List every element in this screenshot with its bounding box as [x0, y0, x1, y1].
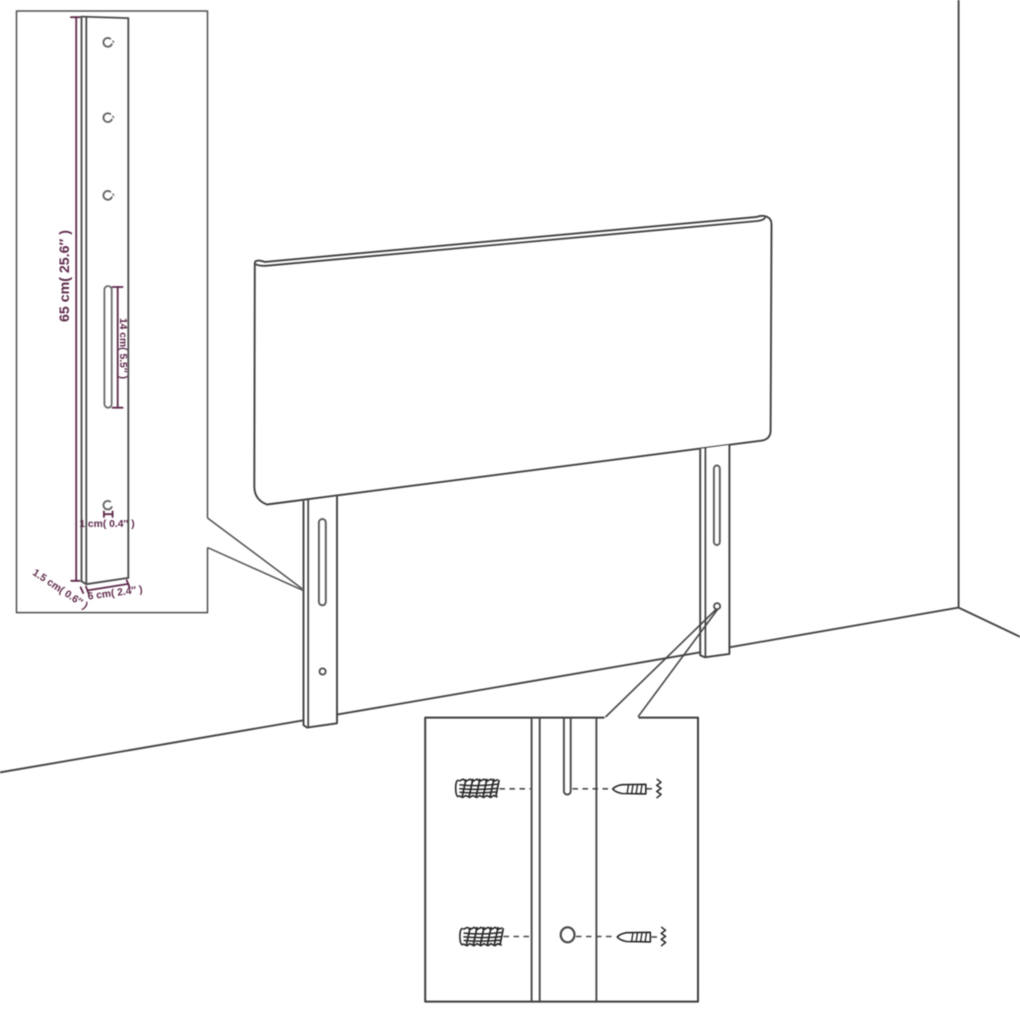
svg-text:1 cm( 0.4″ ): 1 cm( 0.4″ ): [79, 519, 134, 530]
svg-text:65 cm( 25.6″ ): 65 cm( 25.6″ ): [57, 230, 73, 322]
svg-text:14 cm( 5.5″ ): 14 cm( 5.5″ ): [117, 318, 128, 379]
